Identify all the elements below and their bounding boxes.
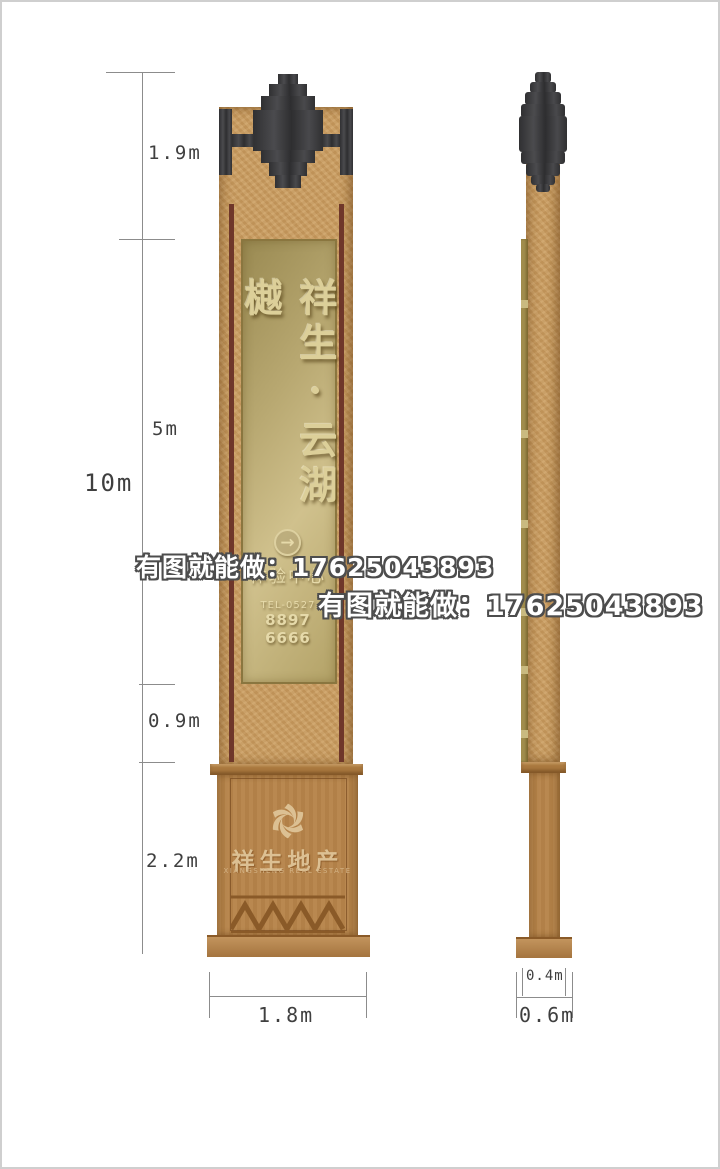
dim-vline-total — [142, 72, 143, 954]
elevation-drawing-canvas: 1.9m 5m 10m 0.9m 2.2m 祥生·云湖樾 → 体验中心 TEL-… — [0, 0, 720, 1169]
front-finial-step — [253, 110, 323, 151]
dim-label-front-width: 1.8m — [258, 1003, 314, 1027]
front-finial-crossbar-left — [232, 134, 254, 147]
dim-tick — [139, 684, 175, 685]
brand-name-text: 祥生·云湖樾 — [233, 278, 343, 538]
side-edge-notch — [521, 520, 528, 528]
brand-name-vertical: 祥生·云湖樾 — [243, 278, 333, 538]
side-finial-bulge — [519, 116, 567, 152]
dim-tick — [209, 972, 210, 1018]
side-edge-notch — [521, 666, 528, 674]
front-finial-crossbar-right — [322, 134, 340, 147]
dim-tick — [522, 968, 523, 996]
front-finial-side-bar-right — [340, 109, 353, 175]
dim-tick — [106, 72, 175, 73]
dim-label-base: 2.2m — [146, 850, 200, 872]
dim-tick — [366, 972, 367, 1018]
side-base-column — [529, 773, 560, 937]
dim-tick — [119, 239, 175, 240]
front-finial-step — [275, 175, 301, 188]
watermark-secondary: 有图就能做：17625043893 — [318, 584, 704, 623]
dim-label-finial: 1.9m — [148, 142, 202, 164]
dim-label-side-base-width: 0.6m — [519, 1003, 575, 1027]
dim-hline-front-width — [209, 996, 367, 997]
dim-tick — [516, 972, 517, 1018]
dim-tick — [139, 762, 175, 763]
side-edge-notch — [521, 300, 528, 308]
front-base-cap — [210, 764, 363, 775]
xiangsheng-swirl-logo-icon — [266, 799, 310, 843]
side-edge-notch — [521, 730, 528, 738]
side-base-cap — [521, 762, 566, 773]
front-finial-side-bar-left — [219, 109, 232, 175]
dim-tick — [565, 968, 566, 996]
side-sign-edge-strip — [521, 239, 528, 762]
front-finial-step — [269, 162, 307, 176]
dim-label-sign: 5m — [152, 418, 179, 440]
dim-label-total-height: 10m — [84, 469, 133, 497]
watermark-primary: 有图就能做：17625043893 — [136, 548, 494, 584]
side-finial-tip — [536, 184, 550, 192]
base-brand-name-en: XIANGSHENG REAL ESTATE — [217, 867, 358, 875]
side-column — [526, 102, 560, 762]
dim-hline-side-width — [516, 997, 573, 998]
dim-label-lower: 0.9m — [148, 710, 202, 732]
front-finial-step — [261, 96, 315, 111]
side-edge-notch — [521, 430, 528, 438]
base-zigzag-ornament — [231, 895, 345, 933]
front-plinth — [207, 935, 370, 957]
dim-label-side-cap-width: 0.4m — [526, 968, 564, 984]
side-plinth — [516, 937, 572, 958]
